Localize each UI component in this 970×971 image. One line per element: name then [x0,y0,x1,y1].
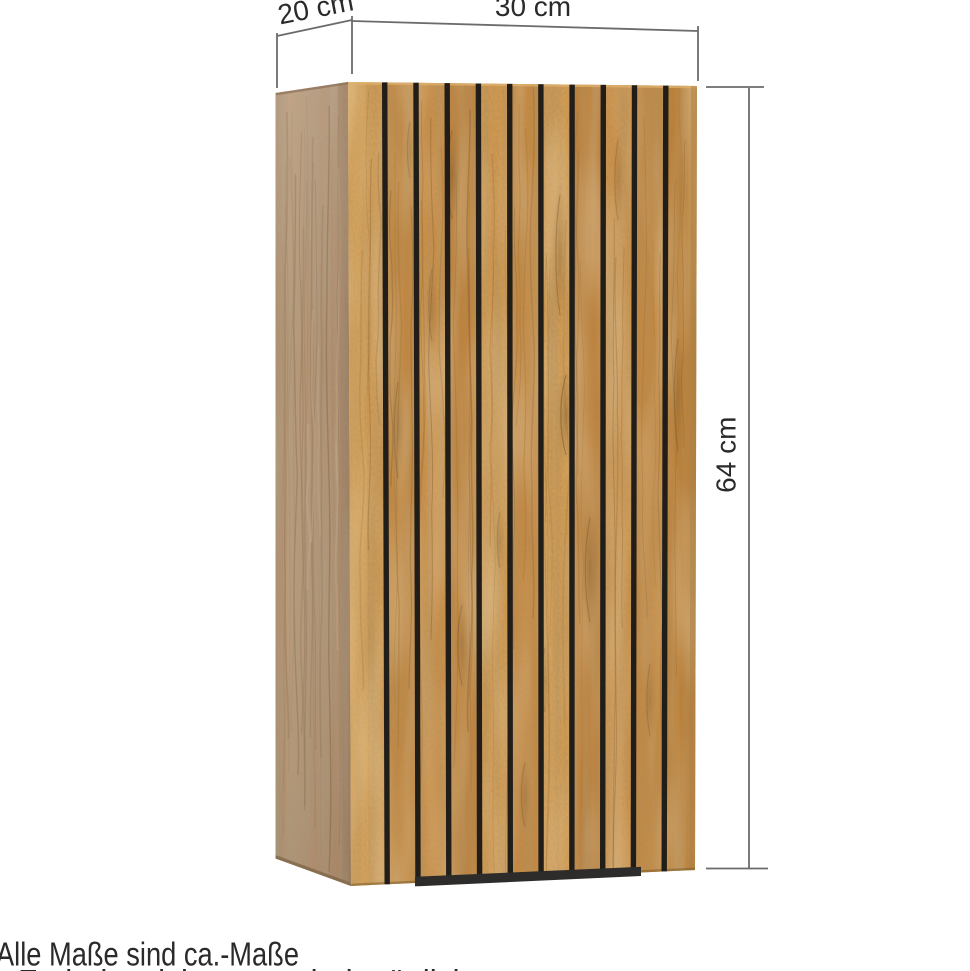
svg-text:30 cm: 30 cm [495,0,571,22]
svg-text:Farbabweichungen sind möglich: Farbabweichungen sind möglich [18,963,470,971]
svg-text:64 cm: 64 cm [711,417,742,493]
